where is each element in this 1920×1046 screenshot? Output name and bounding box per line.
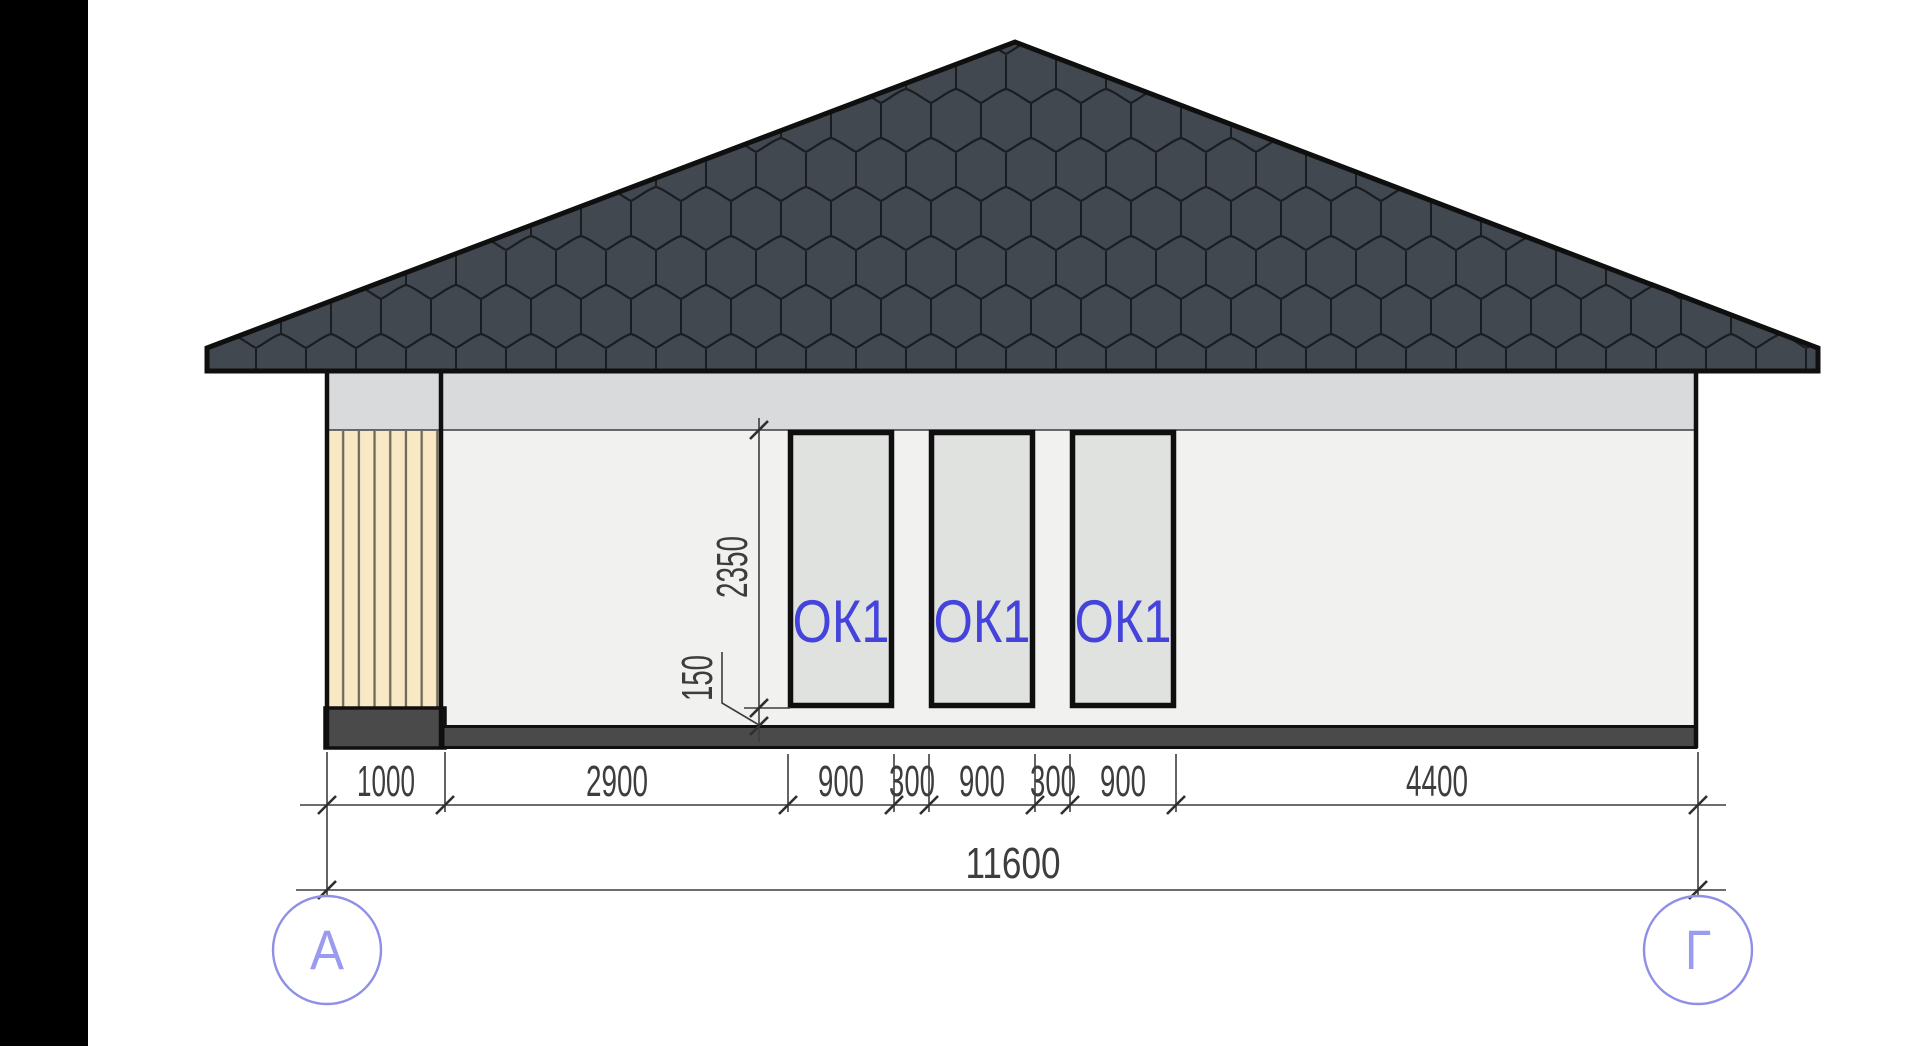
hipped-roof [207,42,1818,371]
dim-label-4400: 4400 [1406,757,1468,806]
window-3-label: ОК1 [1075,588,1172,655]
wall-plinth [443,727,1696,748]
axis-marker-g: Г [1644,896,1752,1004]
axis-marker-a: А [273,896,381,1004]
elevation-drawing-canvas[interactable]: ОК1 ОК1 ОК1 2350 150 [0,0,1920,1046]
window-2-label: ОК1 [934,588,1031,655]
dim-label-total-11600: 11600 [966,839,1061,888]
drawing-viewer: ОК1 ОК1 ОК1 2350 150 [0,0,1920,1046]
dim-label-900: 900 [959,757,1005,806]
roof-tile-pattern [207,42,1818,371]
porch-slat-grooves [329,431,439,710]
dim-label-900: 900 [818,757,864,806]
sill-height-dim-label: 150 [673,655,722,701]
window-3-frame [1073,433,1174,706]
dim-label-300: 300 [1030,757,1076,806]
window-1: ОК1 [791,433,892,706]
axis-label-g: Г [1685,918,1711,981]
dim-label-2900: 2900 [586,757,648,806]
soffit-band [327,373,1696,430]
window-1-label: ОК1 [793,588,890,655]
window-2: ОК1 [932,433,1033,706]
window-height-dim-label: 2350 [708,536,757,598]
porch-base-plinth [325,708,445,748]
window-1-frame [791,433,892,706]
window-2-frame [932,433,1033,706]
dim-label-900: 900 [1100,757,1146,806]
dim-label-1000: 1000 [357,757,415,806]
axis-label-a: А [310,918,345,981]
dim-label-300: 300 [889,757,935,806]
main-wall [443,430,1696,727]
window-3: ОК1 [1073,433,1174,706]
total-dimension: 11600 [296,839,1726,899]
